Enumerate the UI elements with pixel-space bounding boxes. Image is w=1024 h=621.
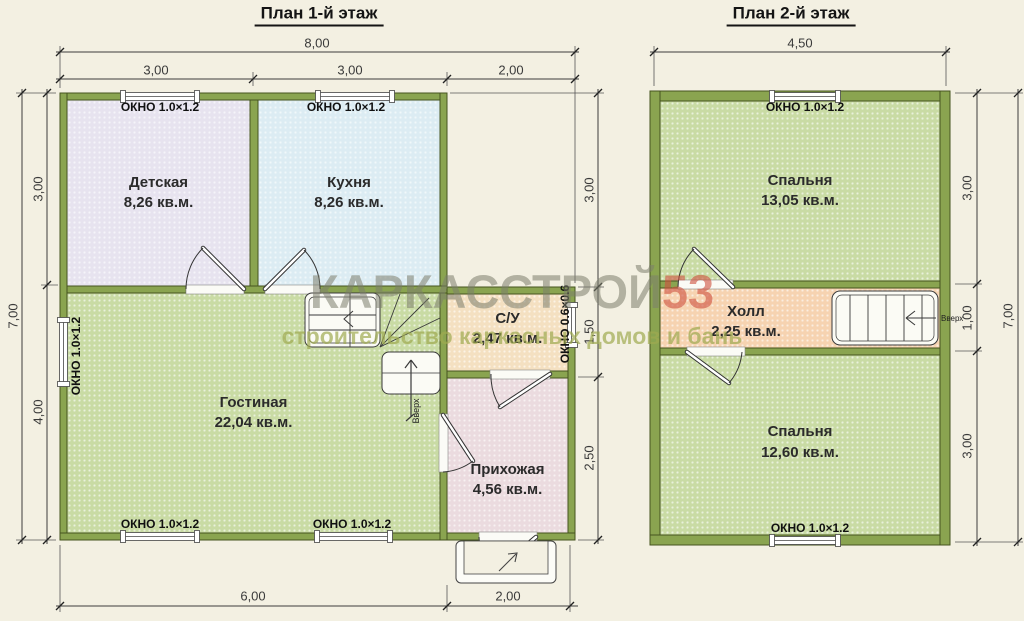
room-bathroom-name: С/У — [495, 309, 519, 329]
window-label-f2-bottom: ОКНО 1.0×1.2 — [771, 521, 849, 535]
room-hallway-name: Прихожая — [470, 460, 544, 480]
dim-f2-right-total: 7,00 — [1001, 303, 1016, 328]
porch — [456, 541, 556, 583]
dim-f2-right-seg2: 1,00 — [960, 305, 975, 330]
window-label-f1-bathroom: ОКНО 0.6×0.6 — [558, 285, 572, 363]
room-bedroom-top-area: 13,05 кв.м. — [761, 191, 839, 211]
dim-f1-right-seg2: 1,50 — [582, 319, 597, 344]
floor1-title: План 1-й этаж — [255, 4, 384, 27]
room-nursery-name: Детская — [129, 173, 188, 193]
dim-f1-bottom-seg2: 2,00 — [495, 589, 520, 604]
room-bedroom-bottom-area: 12,60 кв.м. — [761, 443, 839, 463]
room-nursery: Детская 8,26 кв.м. — [67, 100, 250, 286]
room-bedroom-top-name: Спальня — [768, 171, 833, 191]
room-hallway: Прихожая 4,56 кв.м. — [447, 420, 568, 540]
dim-f1-bottom-seg1: 6,00 — [240, 589, 265, 604]
window-label-f1-bottom-left: ОКНО 1.0×1.2 — [121, 517, 199, 531]
room-living-name: Гостиная — [220, 393, 288, 413]
room-kitchen-name: Кухня — [327, 173, 371, 193]
window-label-f1-top-right: ОКНО 1.0×1.2 — [307, 100, 385, 114]
floor2-title: План 2-й этаж — [727, 4, 856, 27]
room-kitchen: Кухня 8,26 кв.м. — [258, 100, 440, 286]
dim-f1-top-total: 8,00 — [304, 36, 329, 51]
room-nursery-area: 8,26 кв.м. — [124, 193, 194, 213]
window-label-f1-top-left: ОКНО 1.0×1.2 — [121, 100, 199, 114]
window-label-f1-bottom-right: ОКНО 1.0×1.2 — [313, 517, 391, 531]
floor-plan-canvas: План 1-й этаж План 2-й этаж Детская 8,26… — [0, 0, 1024, 621]
dim-f2-right-seg1: 3,00 — [960, 175, 975, 200]
dim-f1-right-seg3: 2,50 — [582, 445, 597, 470]
window-label-f1-left: ОКНО 1.0×1.2 — [69, 317, 83, 395]
room-bathroom: С/У 2,47 кв.м. — [447, 294, 568, 364]
dim-f1-right-seg1: 3,00 — [582, 177, 597, 202]
dim-f1-left-seg1: 3,00 — [31, 176, 46, 201]
room-hall-name: Холл — [727, 302, 765, 322]
dim-f2-top-total: 4,50 — [787, 36, 812, 51]
room-hallway-area: 4,56 кв.м. — [473, 480, 543, 500]
dim-f1-left-total: 7,00 — [6, 303, 21, 328]
room-hall: Холл 2,25 кв.м. — [660, 292, 832, 352]
dim-f2-right-seg3: 3,00 — [960, 433, 975, 458]
room-kitchen-area: 8,26 кв.м. — [314, 193, 384, 213]
stairs-up-label-f1: Вверх — [411, 398, 421, 423]
dim-f1-top-seg2: 3,00 — [337, 63, 362, 78]
room-bedroom-bottom-name: Спальня — [768, 422, 833, 442]
room-bedroom-bottom: Спальня 12,60 кв.м. — [660, 355, 940, 530]
dim-f1-top-seg1: 3,00 — [143, 63, 168, 78]
room-living: Гостиная 22,04 кв.м. — [67, 293, 440, 533]
room-living-area: 22,04 кв.м. — [215, 413, 293, 433]
window-label-f2-top: ОКНО 1.0×1.2 — [766, 100, 844, 114]
room-bedroom-top: Спальня 13,05 кв.м. — [660, 101, 940, 281]
dim-f1-top-seg3: 2,00 — [498, 63, 523, 78]
room-hall-area: 2,25 кв.м. — [711, 322, 781, 342]
room-bathroom-area: 2,47 кв.м. — [473, 329, 543, 349]
dim-f1-left-seg2: 4,00 — [31, 399, 46, 424]
